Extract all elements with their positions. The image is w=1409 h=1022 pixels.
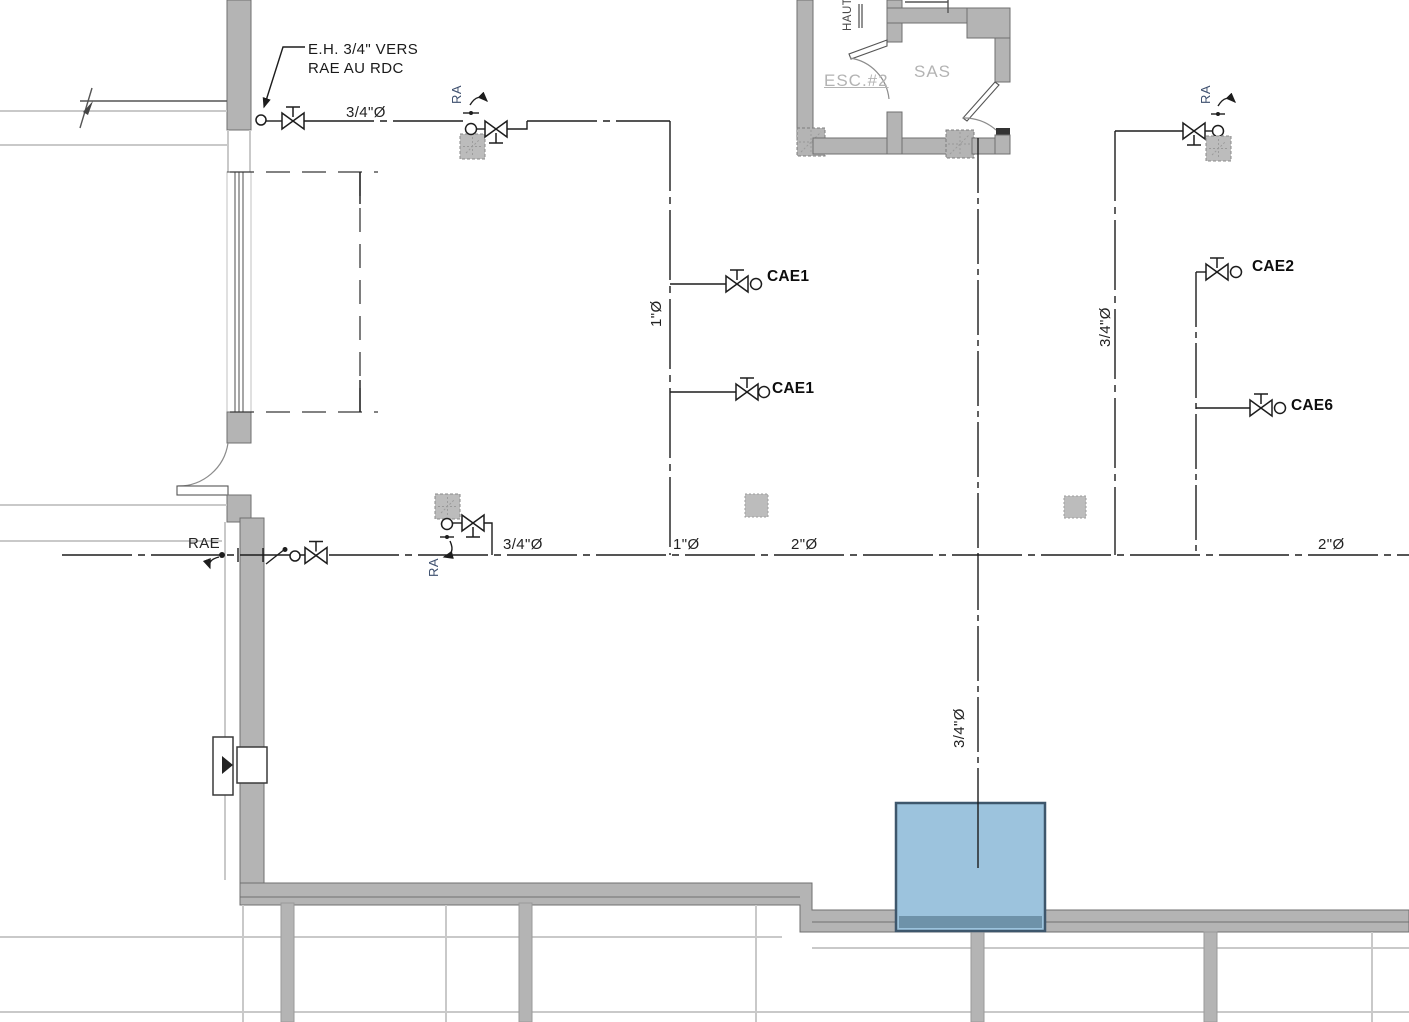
wall-bottom: [240, 883, 1409, 932]
valve-icon: [1250, 394, 1272, 416]
door-left: [177, 443, 228, 495]
mullion: [971, 932, 984, 1022]
ra-assembly-top-right: [1206, 98, 1235, 161]
eh-note-line2: RAE AU RDC: [308, 60, 404, 77]
ra-tag-mid: RA: [426, 558, 441, 577]
valve-icon: [1206, 258, 1228, 280]
wall-sas-corner: [967, 8, 1010, 38]
wall-left-top: [227, 0, 251, 130]
break-symbol: [80, 88, 93, 128]
stair-direction-label: HAUT: [842, 0, 854, 31]
equipment-label-cae2: CAE2: [1252, 258, 1294, 276]
equipment-highlight-box: [896, 803, 1045, 931]
pipe-label-top: 3/4"Ø: [346, 104, 386, 121]
wall-esc-left: [797, 0, 813, 140]
valve-icon: [305, 542, 327, 564]
eh-note: E.H. 3/4" VERSRAE AU RDC: [308, 40, 418, 78]
ra-assembly-mid: [435, 494, 492, 557]
valve-icon: [462, 515, 484, 537]
column-box: [1064, 496, 1086, 518]
walls: [0, 0, 1409, 932]
room-label-sas: SAS: [914, 62, 951, 82]
valve-icon: [1183, 123, 1205, 145]
floor-plan-canvas: E.H. 3/4" VERSRAE AU RDC 3/4"Ø 3/4"Ø 1"Ø…: [0, 0, 1409, 1022]
pipe-label-main-2: 2"Ø: [791, 536, 818, 553]
wall-left-mid: [227, 412, 251, 443]
equipment-label-cae1-b: CAE1: [772, 380, 814, 398]
pipe-label-left-riser: 1"Ø: [648, 300, 665, 327]
wall-left-lower: [240, 518, 264, 884]
valve-icon: [282, 107, 304, 129]
valve-icon: [726, 270, 748, 292]
pipe-label-mid-left: 3/4"Ø: [503, 536, 543, 553]
pipe-label-main-2-right: 2"Ø: [1318, 536, 1345, 553]
pipe-label-right-riser: 3/4"Ø: [1097, 307, 1114, 347]
valve-icon: [736, 378, 758, 400]
rae-label: RAE: [188, 535, 220, 552]
mullion: [519, 903, 532, 1022]
pipe-label-bottom-riser: 3/4"Ø: [951, 708, 968, 748]
equipment-label-cae6: CAE6: [1291, 397, 1333, 415]
room-label-esc: ESC.#2: [824, 71, 889, 91]
column-sas: [946, 130, 974, 158]
valve-icon: [485, 121, 507, 143]
overhead-dashed-outline: [230, 172, 378, 412]
door-sas: [963, 82, 999, 130]
mullion: [1204, 932, 1217, 1022]
wall-esc-bottom: [813, 138, 948, 154]
window-left: [227, 172, 251, 412]
wall-sas-right: [995, 38, 1010, 82]
ra-tag-top-left: RA: [449, 85, 464, 104]
plan-drawing: [0, 0, 1409, 1022]
leader-eh: [264, 47, 305, 107]
column-box: [745, 494, 768, 517]
equipment-label-cae1-a: CAE1: [767, 268, 809, 286]
eh-note-line1: E.H. 3/4" VERS: [308, 41, 418, 58]
door-stop: [996, 128, 1010, 135]
pipe-label-main-1: 1"Ø: [673, 536, 700, 553]
wall-sas-top: [887, 8, 969, 23]
ra-tag-top-right: RA: [1198, 85, 1213, 104]
mullion: [281, 903, 294, 1022]
ra-assembly-top-left: [460, 97, 527, 159]
